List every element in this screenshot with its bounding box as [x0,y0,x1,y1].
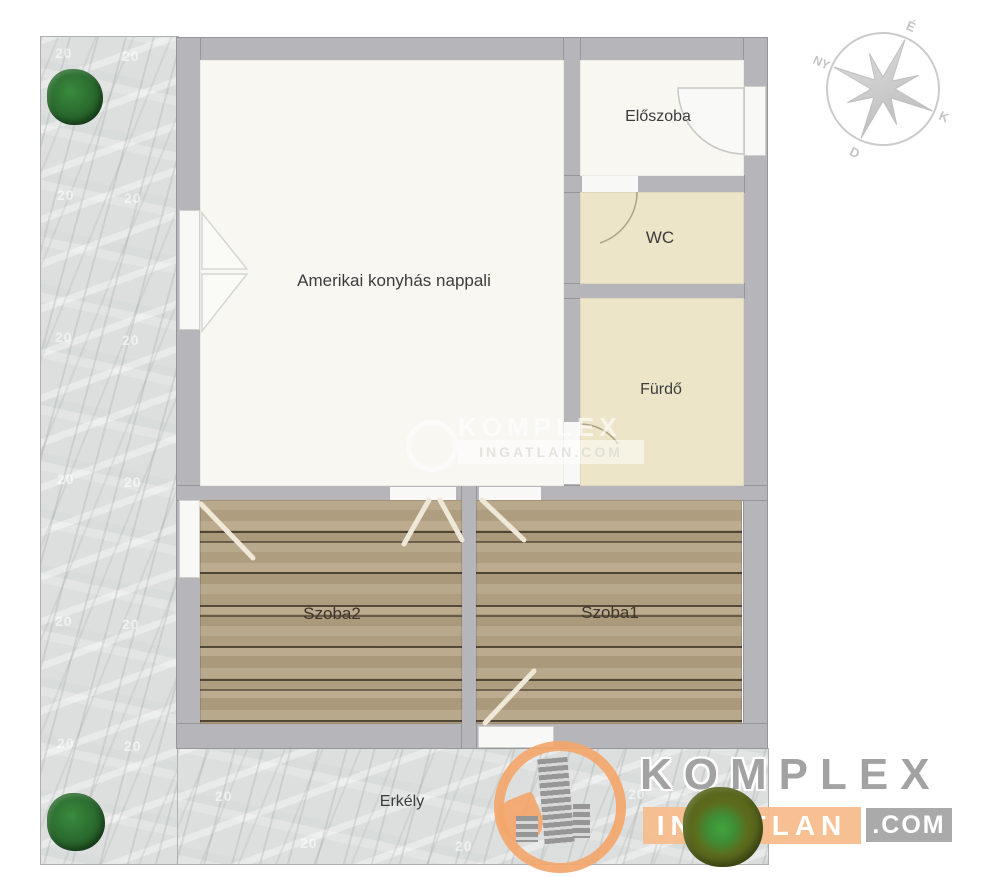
room2-label: Szoba2 [303,604,361,624]
tree-bottom-center [683,787,763,867]
entry-door [744,86,766,156]
logo-building-small-right-icon [573,804,590,838]
wc-label: WC [646,228,674,248]
tree-top-left [47,69,103,125]
compass-west-label: NY [811,53,832,73]
ground-mark: 20 [55,329,73,345]
living-french-door [179,210,200,330]
ground-mark: 20 [124,190,142,206]
bathroom-label: Fürdő [640,381,682,399]
wall-bedrooms-divider [462,486,476,748]
ground-mark: 20 [55,45,73,61]
floorplan-canvas: 20 20 20 20 20 20 20 20 20 20 20 20 20 2… [0,0,1000,877]
compass-rose: É K D NY [808,14,958,164]
wall-left [177,38,200,748]
ground-mark: 20 [57,471,75,487]
ground-mark: 20 [215,788,233,804]
room2-side-door [179,500,200,578]
living-room-label: Amerikai konyhás nappali [297,271,491,291]
ground-mark: 20 [300,835,318,851]
room1-label: Szoba1 [581,603,639,623]
watermark-brand-text: KOMPLEX [458,412,622,443]
compass-north-label: É [904,18,918,35]
logo-com-band: .COM [866,808,952,842]
balcony-label: Erkély [380,793,424,811]
watermark-band: INGATLAN.COM [458,440,644,464]
ground-mark: 20 [57,735,75,751]
ground-mark: 20 [455,838,473,854]
room1-door [479,487,541,500]
ground-mark: 20 [122,616,140,632]
wall-wc-bath-divider [564,284,744,298]
ground-mark: 20 [122,332,140,348]
ground-mark: 20 [57,187,75,203]
watermark-logo-circle [406,420,458,472]
compass-east-label: K [937,108,952,126]
logo-building-small-left-icon [516,816,538,842]
ground-mark: 20 [122,48,140,64]
compass-circle [809,15,957,163]
compass-star [812,18,955,161]
compass-south-label: D [847,144,862,162]
wc-door [582,176,638,192]
room2-door [390,487,456,500]
tree-bottom-left [47,793,105,851]
ground-mark: 20 [124,474,142,490]
logo-brand-text: KOMPLEX [640,750,942,800]
ground-mark: 20 [124,738,142,754]
ground-mark: 20 [55,613,73,629]
hall-label: Előszoba [625,108,691,126]
wall-top [177,38,767,60]
